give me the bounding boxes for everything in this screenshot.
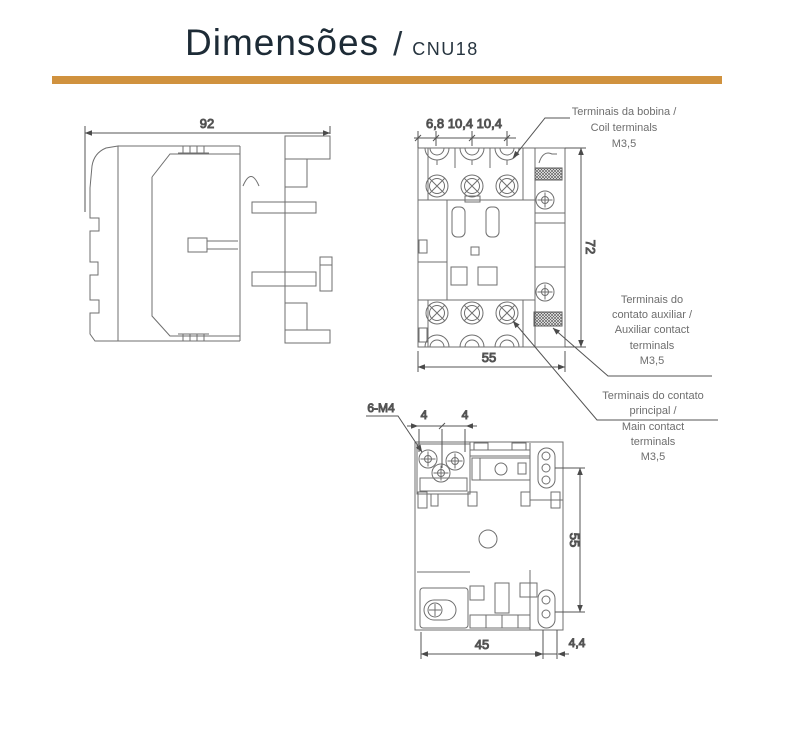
main-note-line-4: terminals <box>631 436 676 448</box>
front-view-drawing <box>418 148 565 347</box>
mount-thread-leader-line <box>366 416 422 452</box>
front-height-dim-label: 72 <box>583 240 598 254</box>
datasheet-page: Dimensões / CNU18 <box>0 0 800 739</box>
side-width-dim-label: 92 <box>200 116 214 131</box>
main-note-line-3: Main contact <box>622 421 684 433</box>
auxiliary-note-line-3: Auxiliar contact <box>615 324 690 336</box>
technical-drawing-canvas: 92 <box>0 0 800 739</box>
auxiliary-note-line-5: M3,5 <box>640 355 664 367</box>
bottom-view-dimensions: 6-M4 4 4 55 45 4,4 <box>366 401 586 659</box>
annotation-auxiliary-terminals: Terminais do contato auxiliar / Auxiliar… <box>612 294 693 367</box>
mount-pitch-right-label: 4 <box>462 408 469 422</box>
coil-note-line-1: Terminais da bobina / <box>572 106 678 118</box>
mount-width-dim-label: 45 <box>475 637 489 652</box>
mount-height-dim-label: 55 <box>567 533 582 547</box>
front-pitch-dim-label: 6,8 10,4 10,4 <box>426 116 502 131</box>
annotation-main-terminals: Terminais do contato principal / Main co… <box>602 390 704 463</box>
mount-thread-label: 6-M4 <box>367 401 395 415</box>
main-note-line-5: M3,5 <box>641 451 665 463</box>
mount-offset-dim-label: 4,4 <box>569 636 586 650</box>
annotation-coil-terminals: Terminais da bobina / Coil terminals M3,… <box>572 106 678 150</box>
auxiliary-note-line-1: Terminais do <box>621 294 683 306</box>
coil-note-line-3: M3,5 <box>612 138 636 150</box>
front-width-dim-label: 55 <box>482 350 496 365</box>
side-view-drawing <box>90 136 332 343</box>
coil-leader-line <box>513 118 570 158</box>
front-view-dimensions: 6,8 10,4 10,4 72 55 <box>414 116 718 420</box>
auxiliary-note-line-2: contato auxiliar / <box>612 309 693 321</box>
mount-pitch-left-label: 4 <box>421 408 428 422</box>
main-note-line-1: Terminais do contato <box>602 390 704 402</box>
bottom-view-drawing <box>415 442 563 630</box>
coil-note-line-2: Coil terminals <box>591 122 658 134</box>
main-note-line-2: principal / <box>629 405 677 417</box>
auxiliary-note-line-4: terminals <box>630 340 675 352</box>
side-view-dimensions: 92 <box>85 116 330 212</box>
